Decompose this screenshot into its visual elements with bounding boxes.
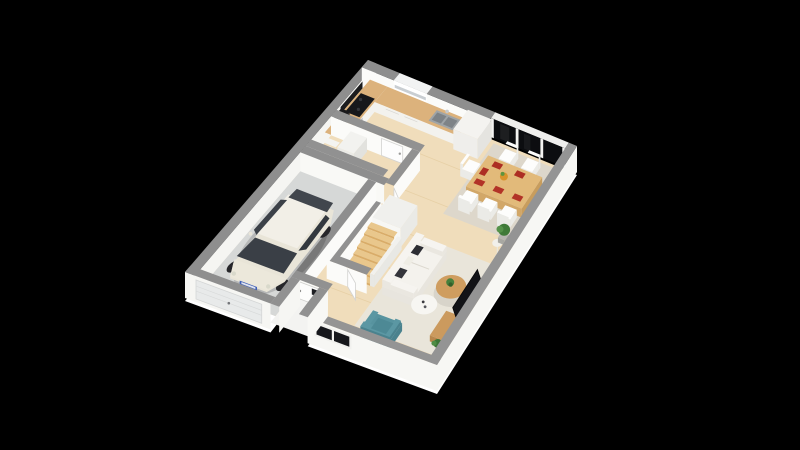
cup bbox=[424, 305, 427, 308]
car-headlight bbox=[266, 284, 270, 288]
cup bbox=[422, 301, 425, 304]
car-mirror bbox=[301, 252, 305, 256]
stairs-stringer bbox=[370, 274, 374, 288]
coffee-table-plant bbox=[448, 282, 452, 286]
floorplan-viewport bbox=[0, 0, 800, 450]
sink-faucet bbox=[445, 110, 449, 114]
glass-door-reflection bbox=[524, 134, 530, 152]
fruit bbox=[501, 172, 505, 176]
cooktop-burner bbox=[357, 108, 360, 111]
plant-foliage bbox=[431, 341, 436, 346]
plant-foliage bbox=[497, 226, 504, 233]
door-handle bbox=[399, 153, 401, 155]
dining-chair-back bbox=[539, 155, 541, 170]
floorplan-3d-render bbox=[0, 0, 800, 450]
cooktop-burner bbox=[359, 98, 362, 101]
glass-door-mullion bbox=[540, 138, 543, 158]
car-headlight bbox=[232, 271, 236, 275]
garage-door-handle bbox=[228, 302, 231, 305]
dining-chair-back bbox=[517, 146, 519, 161]
car-mirror bbox=[249, 232, 253, 236]
